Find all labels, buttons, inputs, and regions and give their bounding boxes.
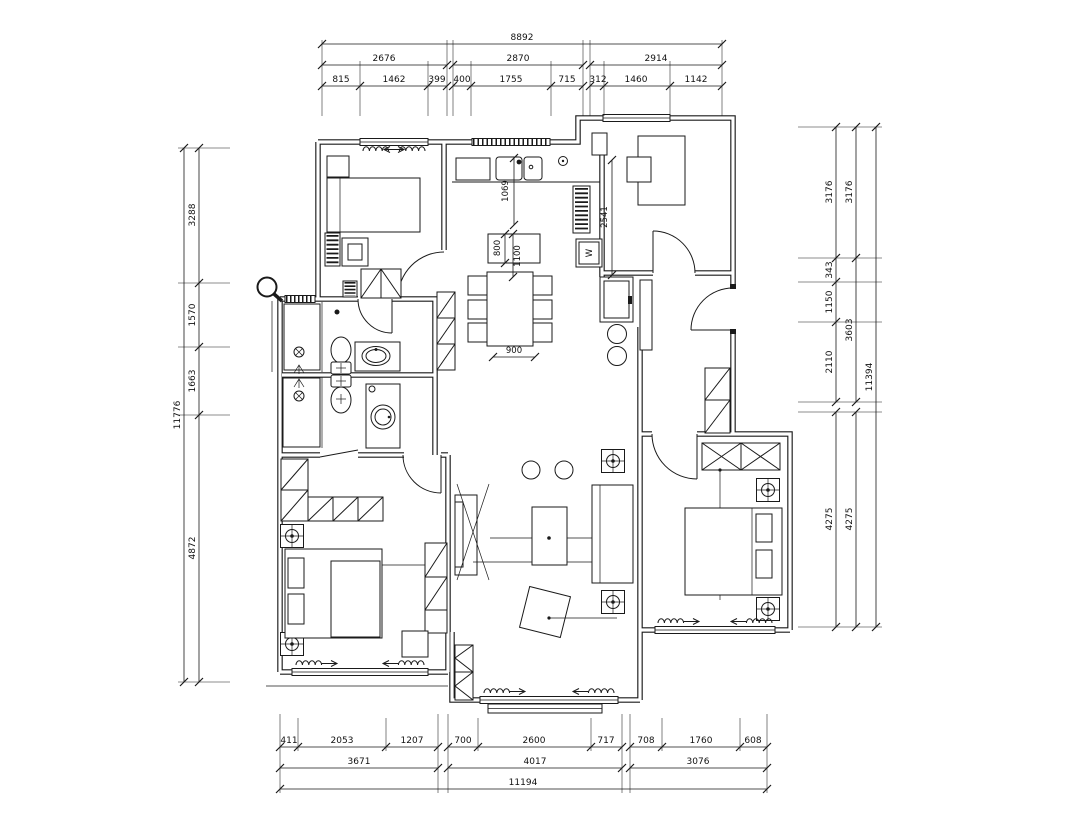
radiator-icon bbox=[573, 186, 590, 233]
stool-icon bbox=[522, 461, 540, 479]
washer-box: W bbox=[576, 239, 602, 267]
dim-label: 4872 bbox=[188, 537, 198, 560]
dim-label: 1142 bbox=[685, 75, 708, 85]
wardrobe-right bbox=[402, 543, 447, 657]
curtain-icon bbox=[573, 689, 614, 695]
sink-icon bbox=[496, 157, 542, 180]
dim-label: 2600 bbox=[523, 736, 546, 746]
door-bath-upper bbox=[358, 299, 392, 333]
speaker-icon bbox=[602, 591, 625, 614]
stool-icon bbox=[608, 325, 627, 344]
dim-label: 815 bbox=[332, 75, 349, 85]
toilet-icon bbox=[331, 337, 351, 374]
sofa-icon bbox=[592, 485, 633, 583]
window-bedroom1 bbox=[360, 139, 428, 146]
curtain-icon bbox=[296, 661, 337, 667]
dim-label: 2870 bbox=[507, 54, 530, 64]
dim-label: 1755 bbox=[500, 75, 523, 85]
dim-label: 3603 bbox=[845, 319, 855, 342]
dining-table bbox=[487, 272, 533, 346]
dim-label: 700 bbox=[454, 736, 471, 746]
shower-head-icon bbox=[294, 379, 304, 401]
toilet-icon bbox=[331, 375, 351, 413]
dim-label: 3176 bbox=[845, 180, 855, 203]
dim-label: 2541 bbox=[600, 206, 610, 228]
dim-label: 4275 bbox=[825, 508, 835, 531]
living-furniture bbox=[455, 450, 633, 701]
curtain-icon bbox=[658, 619, 699, 625]
dim-label: 8892 bbox=[511, 33, 534, 43]
side-table bbox=[520, 587, 571, 638]
vanity-icon bbox=[355, 342, 400, 371]
wardrobe-bedroom1 bbox=[361, 269, 401, 298]
dim-label: 708 bbox=[637, 736, 654, 746]
dim-bottom: 411 2053 1207 700 2600 717 708 1760 608 … bbox=[276, 714, 771, 793]
shower-head-icon bbox=[294, 347, 304, 374]
dim-label: 1069 bbox=[501, 180, 511, 202]
dim-label: 1100 bbox=[513, 245, 523, 267]
dim-left: 11776 3288 1570 1663 4872 bbox=[173, 144, 230, 686]
stool-icon bbox=[555, 461, 573, 479]
coffee-table bbox=[532, 507, 567, 565]
dim-label: 4017 bbox=[524, 757, 547, 767]
exterior-details bbox=[258, 278, 603, 714]
dim-label: 1663 bbox=[188, 370, 198, 393]
door-bedroom3 bbox=[652, 434, 697, 479]
window-bedroom3 bbox=[655, 627, 775, 634]
dim-right: 3176 343 1150 2110 4275 3176 3603 4275 1… bbox=[798, 123, 882, 631]
wardrobe-bedroom3 bbox=[702, 443, 780, 470]
bedroom2-furniture bbox=[281, 459, 448, 667]
door-bath-lower bbox=[320, 450, 358, 457]
dim-label: 11394 bbox=[865, 362, 875, 391]
nightstand-icon bbox=[281, 525, 304, 548]
dim-label: 2110 bbox=[825, 350, 835, 373]
window-living-bay bbox=[480, 697, 618, 704]
dim-label: 399 bbox=[428, 75, 445, 85]
door-entry bbox=[691, 288, 733, 330]
dim-label: 1570 bbox=[188, 303, 198, 326]
wardrobe-bedroom2 bbox=[281, 459, 383, 521]
stool-icon bbox=[608, 347, 627, 366]
window-bath-vent bbox=[285, 296, 315, 303]
dim-label: 1207 bbox=[401, 736, 424, 746]
window-study bbox=[603, 115, 670, 122]
hall-cabinet bbox=[437, 292, 455, 370]
dim-label: 608 bbox=[744, 736, 761, 746]
dim-top: 8892 2676 2870 2914 815 1462 399 400 175… bbox=[318, 33, 726, 116]
dim-label: 715 bbox=[558, 75, 575, 85]
dim-label: 411 bbox=[280, 736, 297, 746]
bed-icon bbox=[285, 549, 382, 638]
dim-label: 4275 bbox=[845, 508, 855, 531]
bay-cabinet bbox=[455, 645, 473, 700]
dim-label: 1460 bbox=[625, 75, 648, 85]
dim-label: 1760 bbox=[690, 736, 713, 746]
curtain-icon bbox=[484, 689, 525, 695]
fridge-icon bbox=[600, 277, 633, 322]
dim-label: 1150 bbox=[825, 290, 835, 313]
bed-icon bbox=[685, 508, 782, 595]
dim-label: 2053 bbox=[331, 736, 354, 746]
dim-label: 2676 bbox=[373, 54, 396, 64]
speaker-icon bbox=[602, 450, 625, 473]
dim-label: 800 bbox=[493, 240, 503, 256]
dim-label: 400 bbox=[453, 75, 470, 85]
chair-icon bbox=[627, 157, 651, 182]
bedroom3-furniture bbox=[658, 368, 782, 625]
dim-label: 2914 bbox=[645, 54, 668, 64]
shoe-cabinet bbox=[705, 368, 730, 433]
dim-label: 11776 bbox=[173, 400, 183, 429]
dim-label: 343 bbox=[825, 261, 835, 278]
door-study bbox=[653, 231, 695, 273]
curtain-icon bbox=[383, 661, 424, 667]
washing-machine-icon bbox=[366, 384, 400, 448]
window-bedroom2 bbox=[292, 669, 428, 676]
nightstand-icon bbox=[757, 598, 780, 621]
dim-label: 3288 bbox=[188, 203, 198, 226]
dim-label: 3671 bbox=[348, 757, 371, 767]
floor-plan-drawing: W bbox=[0, 0, 1076, 825]
dim-label: 717 bbox=[597, 736, 614, 746]
nightstand-icon bbox=[757, 479, 780, 502]
dim-label: 900 bbox=[506, 346, 522, 356]
tv-unit-icon bbox=[455, 484, 489, 580]
dim-label: 1462 bbox=[383, 75, 406, 85]
bedroom1-furniture bbox=[325, 147, 425, 299]
dim-label: 3176 bbox=[825, 180, 835, 203]
window-kitchen bbox=[472, 139, 550, 146]
dim-label: 312 bbox=[589, 75, 606, 85]
dim-label: 3076 bbox=[687, 757, 710, 767]
dim-label: 11194 bbox=[509, 778, 538, 788]
door-bedroom2 bbox=[403, 455, 441, 493]
floor-plan-canvas: W bbox=[0, 0, 1076, 825]
washer-label: W bbox=[585, 248, 595, 257]
door-bedroom1 bbox=[398, 252, 444, 298]
